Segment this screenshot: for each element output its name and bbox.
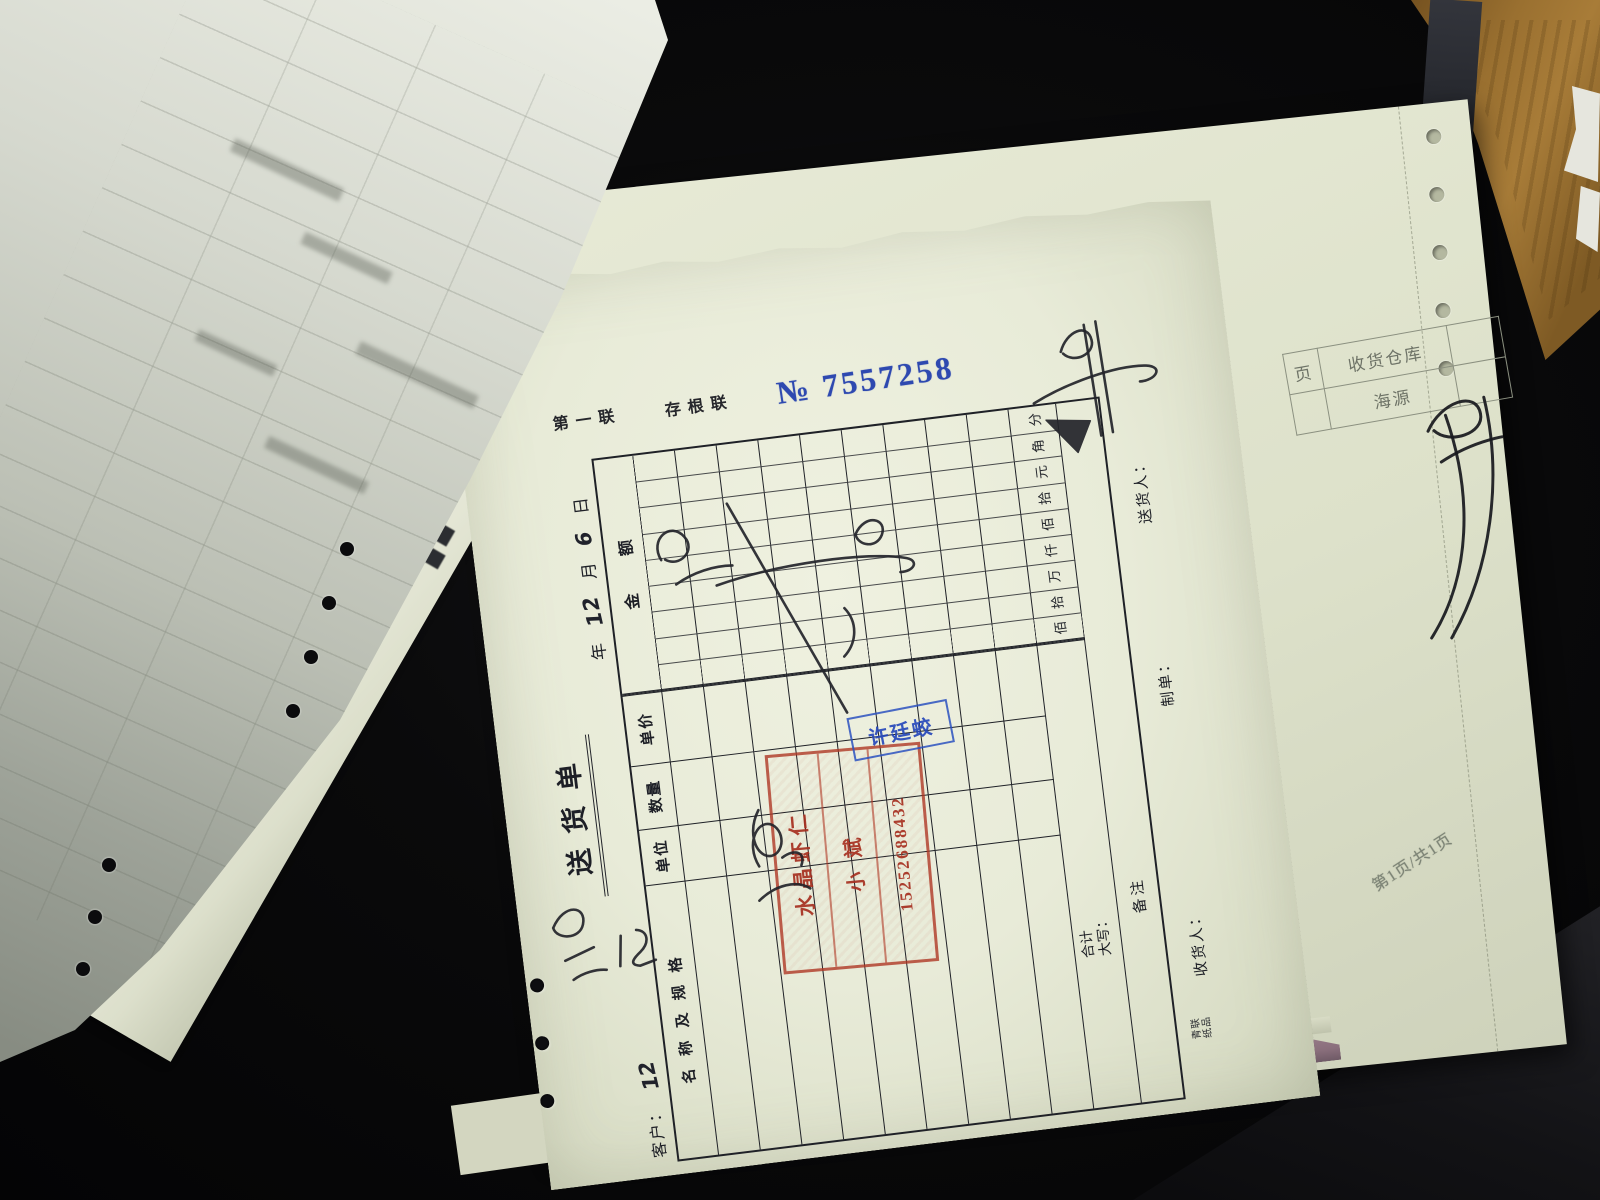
delivery-form: 送货单 客户： 12 年 12 月 6 日 名称及规格单位数量单价金额合计大写：… (510, 386, 1291, 1172)
tractor-hole (1426, 128, 1442, 144)
item-cell-amount-digit (656, 633, 701, 664)
item-cell-amount-digit (951, 623, 996, 656)
receiver-label: 收货人： (1183, 908, 1212, 978)
item-cell-amount-digit (678, 472, 723, 503)
item-cell-amount-digit (858, 555, 903, 586)
item-cell-amount-digit (938, 519, 983, 550)
item-cell-amount-digit (864, 607, 909, 638)
item-cell-amount-digit (717, 440, 762, 471)
item-cell-amount-digit (909, 628, 954, 661)
day-label: 日 (565, 495, 592, 516)
item-cell-amount-digit (806, 482, 851, 513)
item-cell-amount-digit (941, 545, 986, 576)
tractor-hole (529, 978, 545, 994)
item-cell-amount-digit (762, 461, 807, 492)
delivery-note-page: 第一联 存根联 № 7557258 送货单 客户： 12 年 12 月 6 日 (440, 191, 1320, 1191)
item-cell-amount-digit (659, 659, 704, 692)
item-cell-amount-digit (822, 612, 867, 643)
item-cell-amount-digit (694, 602, 739, 633)
item-cell-amount-digit (633, 451, 678, 482)
month-label: 月 (573, 560, 600, 581)
tractor-hole (322, 596, 336, 610)
empty-cell (1453, 356, 1513, 407)
item-cell-unit (970, 784, 1019, 845)
item-cell-amount-digit (845, 451, 890, 482)
photo-of-delivery-note: 页 收货仓库 海源 第1页/共1页 第一联 (0, 0, 1600, 1200)
copy-type-label: 存根联 (663, 388, 735, 421)
item-cell-amount-digit (681, 498, 726, 529)
month-handwriting: 12 (577, 595, 608, 627)
item-cell-amount-digit (842, 425, 887, 456)
copy-number-label: 第一联 (551, 401, 623, 434)
amount-digit-label: 佰 (1034, 612, 1085, 646)
item-cell-amount-digit (931, 467, 976, 498)
item-cell-amount-digit (935, 493, 980, 524)
item-cell-amount-digit (983, 540, 1028, 571)
perforation-line (1398, 107, 1498, 1052)
item-cell-amount-digit (973, 462, 1018, 493)
item-cell-amount-digit (729, 544, 774, 575)
tractor-hole (304, 650, 318, 664)
item-cell-unit (720, 815, 769, 876)
item-cell-amount-digit (736, 597, 781, 628)
item-cell-amount-digit (784, 643, 829, 676)
item-cell-amount-digit (691, 576, 736, 607)
item-cell-amount-digit (726, 518, 771, 549)
item-cell-unit (929, 789, 978, 850)
item-cell-amount-digit (810, 508, 855, 539)
tractor-hole (1429, 186, 1445, 202)
tractor-hole (1435, 302, 1451, 318)
item-cell-amount-digit (986, 566, 1031, 597)
item-cell-amount-digit (925, 415, 970, 446)
customer-label: 客户： (641, 1103, 671, 1160)
item-cell-amount-digit (970, 436, 1015, 467)
item-cell-amount-digit (742, 649, 787, 682)
item-cell-amount-digit (980, 514, 1025, 545)
tractor-hole (76, 962, 90, 976)
red-vendor-stamp: 水晶虾仁 小斌 15252688432 (765, 742, 940, 975)
item-cell-amount-digit (803, 456, 848, 487)
item-cell-amount-digit (643, 529, 688, 560)
item-cell-amount-digit (826, 638, 871, 671)
item-cell-amount-digit (890, 472, 935, 503)
item-cell-amount-digit (700, 654, 745, 687)
item-cell-amount-digit (854, 529, 899, 560)
header-unit: 单位 (639, 825, 686, 885)
tractor-hole (102, 858, 116, 872)
item-cell-amount-digit (861, 581, 906, 612)
item-cell-amount-digit (944, 571, 989, 602)
item-cell-amount-digit (636, 477, 681, 508)
tractor-hole (539, 1093, 555, 1109)
item-cell-amount-digit (819, 586, 864, 617)
item-cell-unit (1012, 779, 1061, 840)
customer-handwriting: 12 (633, 1061, 664, 1091)
item-cell-amount-digit (976, 488, 1021, 519)
tractor-hole (88, 910, 102, 924)
item-cell-amount-digit (903, 576, 948, 607)
item-cell-amount-digit (649, 581, 694, 612)
item-cell-amount-digit (768, 513, 813, 544)
item-cell-amount-digit (733, 571, 778, 602)
item-cell-amount-digit (646, 555, 691, 586)
item-cell-amount-digit (896, 524, 941, 555)
item-cell-amount-digit (765, 487, 810, 518)
item-cell-amount-digit (777, 591, 822, 622)
item-cell-amount-digit (928, 441, 973, 472)
printer-brand: 青联 纸品 (1190, 1015, 1215, 1040)
item-cell-amount-digit (883, 420, 928, 451)
item-cell-amount-digit (893, 498, 938, 529)
item-cell-amount-digit (989, 592, 1034, 623)
maker-label: 制单： (1152, 654, 1179, 707)
item-cell-amount-digit (816, 560, 861, 591)
item-cell-amount-digit (771, 539, 816, 570)
warehouse-table-fragment: 页 收货仓库 海源 (1282, 315, 1519, 448)
serial-number: № 7557258 (774, 349, 957, 412)
tractor-hole (286, 704, 300, 718)
item-cell-amount-digit (723, 492, 768, 523)
item-cell-amount-digit (867, 633, 912, 666)
item-cell-amount-digit (758, 435, 803, 466)
item-cell-amount-digit (813, 534, 858, 565)
year-label: 年 (583, 641, 610, 662)
item-cell-amount-digit (848, 477, 893, 508)
item-cell-amount-digit (967, 410, 1012, 441)
item-cell-amount-digit (697, 628, 742, 659)
item-cell-amount-digit (688, 550, 733, 581)
item-cell-amount-digit (652, 607, 697, 638)
deliverer-label: 送货人： (1127, 455, 1156, 525)
tractor-hole (534, 1035, 550, 1051)
tractor-hole (340, 542, 354, 556)
item-cell-amount-digit (800, 430, 845, 461)
item-cell-amount-digit (640, 503, 685, 534)
item-cell-amount-digit (899, 550, 944, 581)
item-cell-unit (679, 820, 728, 881)
item-cell-amount-digit (992, 618, 1037, 651)
item-cell-amount-digit (887, 446, 932, 477)
tractor-hole (1432, 244, 1448, 260)
item-cell-amount-digit (675, 446, 720, 477)
day-handwriting: 6 (570, 530, 598, 546)
item-cell-amount-digit (774, 565, 819, 596)
item-cell-amount-digit (685, 524, 730, 555)
item-cell-amount-digit (906, 602, 951, 633)
item-cell-amount-digit (947, 597, 992, 628)
item-cell-amount-digit (851, 503, 896, 534)
item-cell-amount-digit (720, 466, 765, 497)
item-cell-amount-digit (781, 617, 826, 648)
item-cell-amount-digit (739, 623, 784, 654)
